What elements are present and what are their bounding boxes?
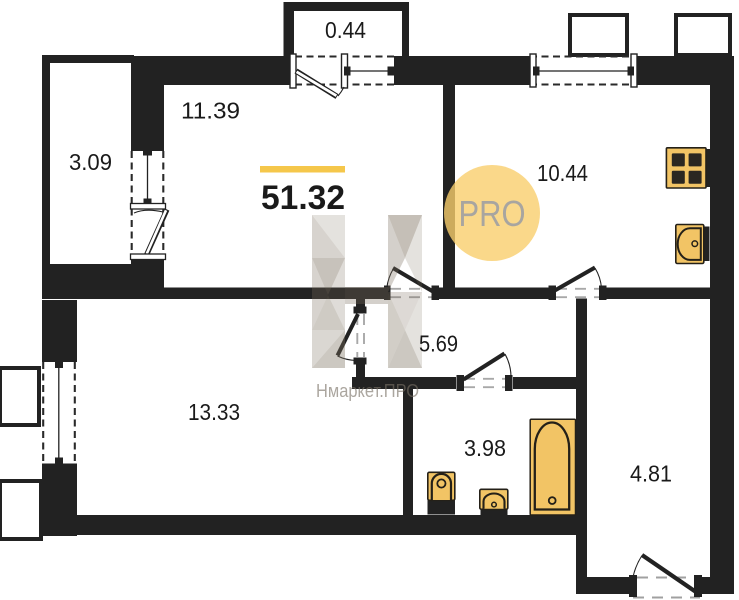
svg-text:Нмаркет.ПРО: Нмаркет.ПРО <box>316 381 419 401</box>
svg-text:11.39: 11.39 <box>181 98 240 124</box>
svg-text:4.81: 4.81 <box>630 461 672 487</box>
svg-text:PRO: PRO <box>459 193 526 234</box>
svg-text:5.69: 5.69 <box>419 331 458 357</box>
svg-text:3.09: 3.09 <box>69 149 112 175</box>
svg-text:13.33: 13.33 <box>188 399 240 425</box>
svg-text:0.44: 0.44 <box>325 17 366 43</box>
svg-text:3.98: 3.98 <box>464 435 506 461</box>
svg-text:10.44: 10.44 <box>537 160 588 186</box>
svg-text:51.32: 51.32 <box>261 179 345 217</box>
